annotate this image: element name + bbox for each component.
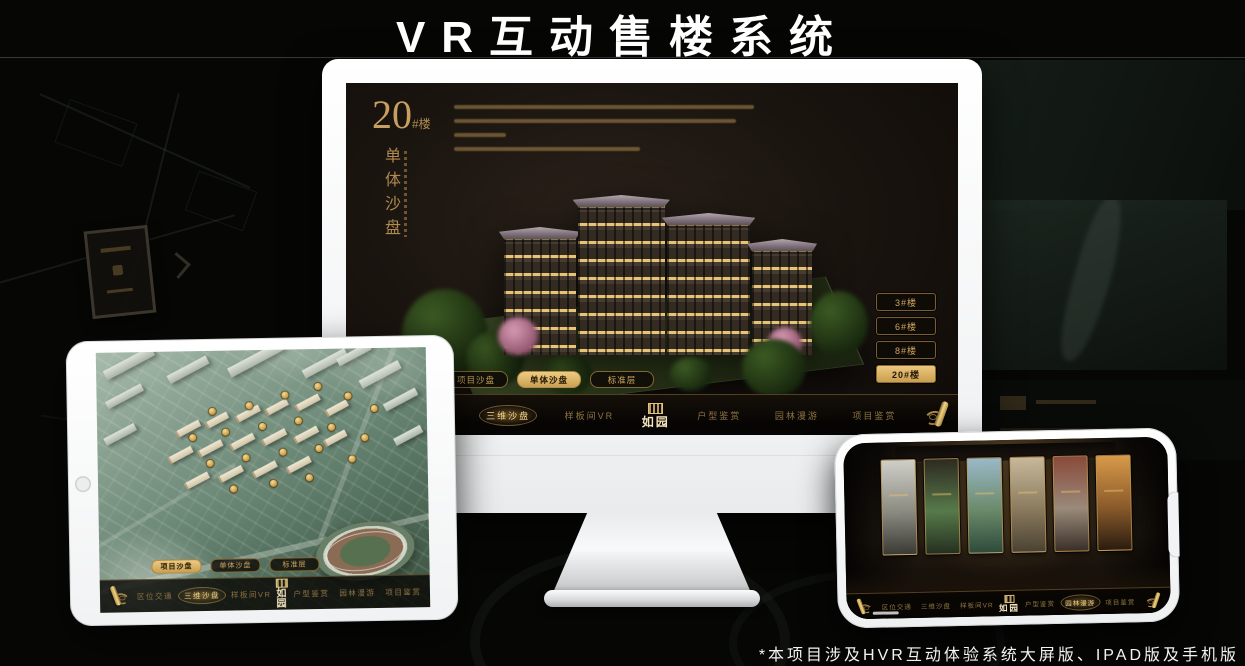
ipad-screen: 项目沙盘单体沙盘标准层 区位交通三维沙盘样板间VR如园户型鉴赏园林漫游项目鉴赏	[96, 347, 430, 613]
scroll-right-icon[interactable]	[924, 403, 948, 427]
background-screenshot	[980, 60, 1245, 210]
sub-tab[interactable]: 标准层	[269, 557, 319, 572]
nav-item[interactable]: 样板间VR	[956, 597, 998, 612]
scroll-left-icon[interactable]	[110, 587, 129, 606]
phone-notch	[1167, 492, 1179, 556]
seal-icon	[1004, 595, 1014, 603]
building-badge[interactable]	[190, 434, 197, 441]
scroll-left-icon[interactable]	[857, 599, 872, 614]
background-plaque	[84, 225, 157, 319]
nav-item[interactable]: 园林漫游	[769, 406, 825, 425]
block-subtitle: 单体沙盘	[378, 147, 402, 277]
river-shape	[1051, 200, 1132, 366]
building-badge[interactable]	[209, 408, 216, 415]
nav-items: 区位交通三维沙盘样板间VR如园户型鉴赏园林漫游项目鉴赏	[132, 576, 427, 612]
building-badge[interactable]	[295, 417, 302, 424]
brand-logo[interactable]: 如园	[999, 595, 1020, 613]
building-badges	[96, 347, 430, 613]
building-badge[interactable]	[344, 393, 351, 400]
sub-tab[interactable]: 单体沙盘	[210, 558, 260, 573]
ipad-device: 项目沙盘单体沙盘标准层 区位交通三维沙盘样板间VR如园户型鉴赏园林漫游项目鉴赏	[66, 335, 459, 627]
nav-items: 区位交通三维沙盘样板间VR如园户型鉴赏园林漫游项目鉴赏	[876, 592, 1140, 615]
brand-logo[interactable]: 如园	[276, 578, 289, 609]
building-badge[interactable]	[245, 402, 252, 409]
building-badge[interactable]	[314, 383, 321, 390]
block-number: 20	[372, 92, 412, 137]
monitor-stand-base	[544, 590, 760, 607]
block-title: 20#楼	[372, 95, 431, 135]
nav-item[interactable]: 样板间VR	[226, 586, 277, 602]
sub-tab[interactable]: 项目沙盘	[151, 559, 201, 574]
gallery-panel[interactable]	[1095, 454, 1132, 551]
building-model-scene[interactable]	[412, 141, 898, 433]
brand-logo[interactable]: 如园	[642, 403, 670, 428]
building-badge[interactable]	[207, 460, 214, 467]
building-badge[interactable]	[259, 423, 266, 430]
sub-tab[interactable]: 标准层	[590, 371, 654, 388]
seal-icon	[276, 578, 288, 587]
nav-item[interactable]: 三维沙盘	[178, 586, 226, 604]
building-badge[interactable]	[230, 486, 237, 493]
nav-item[interactable]: 园林漫游	[1060, 594, 1100, 611]
building-badge[interactable]	[222, 429, 229, 436]
gallery-panel[interactable]	[881, 459, 918, 556]
bottom-nav: 区位交通三维沙盘样板间VR如园户型鉴赏园林漫游项目鉴赏	[100, 574, 431, 613]
building-tower	[578, 205, 665, 355]
nav-item[interactable]: 户型鉴赏	[691, 406, 747, 425]
sub-tab[interactable]: 单体沙盘	[517, 371, 581, 388]
nav-item[interactable]: 三维沙盘	[479, 405, 537, 426]
building-badge[interactable]	[270, 480, 277, 487]
nav-item[interactable]: 户型鉴赏	[288, 585, 334, 601]
gallery-panel[interactable]	[1010, 456, 1047, 553]
nav-item[interactable]: 项目鉴赏	[1101, 594, 1139, 609]
tree-blob	[742, 339, 806, 397]
sub-tab-row: 项目沙盘单体沙盘标准层	[151, 557, 319, 574]
nav-item[interactable]: 区位交通	[132, 588, 178, 604]
nav-item[interactable]: 园林漫游	[334, 584, 380, 600]
nav-items: 区位交通三维沙盘样板间VR如园户型鉴赏园林漫游项目鉴赏	[380, 403, 924, 428]
building-badge[interactable]	[328, 424, 335, 431]
nav-item[interactable]: 三维沙盘	[917, 598, 955, 613]
nav-item[interactable]: 项目鉴赏	[846, 406, 902, 425]
building-button[interactable]: 3#楼	[876, 293, 936, 311]
building-badge[interactable]	[348, 455, 355, 462]
building-button[interactable]: 6#楼	[876, 317, 936, 335]
building-badge[interactable]	[281, 391, 288, 398]
poster-title: VR互动售楼系统	[0, 1, 1245, 65]
building-button[interactable]: 20#楼	[876, 365, 936, 383]
home-indicator	[873, 611, 899, 615]
gallery-panel[interactable]	[967, 457, 1004, 554]
background-aerial-photo	[982, 200, 1227, 370]
seal-icon	[648, 403, 663, 414]
nav-item[interactable]: 样板间VR	[559, 406, 621, 425]
poster-footnote: *本项目涉及HVR互动体验系统大屏版、IPAD版及手机版	[759, 641, 1239, 665]
map-lot	[185, 171, 258, 232]
phone-screen: 区位交通三维沙盘样板间VR如园户型鉴赏园林漫游项目鉴赏	[843, 437, 1171, 620]
gallery-panel[interactable]	[1053, 455, 1090, 552]
building-badge[interactable]	[279, 448, 286, 455]
scene-gallery	[881, 454, 1133, 555]
building-wing	[667, 223, 750, 355]
scroll-right-icon[interactable]	[1145, 593, 1160, 608]
building-badge[interactable]	[243, 454, 250, 461]
chevron-right-icon	[164, 252, 191, 279]
building-badge[interactable]	[306, 474, 313, 481]
tree-blob	[670, 357, 712, 391]
blossom-tree-blob	[498, 317, 538, 355]
tree-blob	[810, 291, 868, 357]
poster: VR互动售楼系统 20#楼 单体沙盘	[0, 0, 1245, 666]
building-badge[interactable]	[361, 434, 368, 441]
subtitle-english-caption	[404, 151, 407, 237]
building-button[interactable]: 8#楼	[876, 341, 936, 359]
building-badge[interactable]	[315, 445, 322, 452]
monitor-stand-neck	[552, 511, 752, 595]
building-badge[interactable]	[371, 405, 378, 412]
sub-tab-row: 项目沙盘单体沙盘标准层	[444, 371, 654, 388]
building-selector: 3#楼6#楼8#楼20#楼	[876, 293, 936, 383]
block-suffix: #楼	[412, 117, 431, 131]
phone-device: 区位交通三维沙盘样板间VR如园户型鉴赏园林漫游项目鉴赏	[834, 427, 1180, 628]
map-lot	[54, 99, 137, 167]
model-building	[504, 175, 812, 355]
nav-item[interactable]: 项目鉴赏	[380, 584, 426, 600]
description-text-lines	[454, 105, 754, 161]
gallery-panel[interactable]	[924, 458, 961, 555]
nav-item[interactable]: 户型鉴赏	[1021, 595, 1059, 610]
